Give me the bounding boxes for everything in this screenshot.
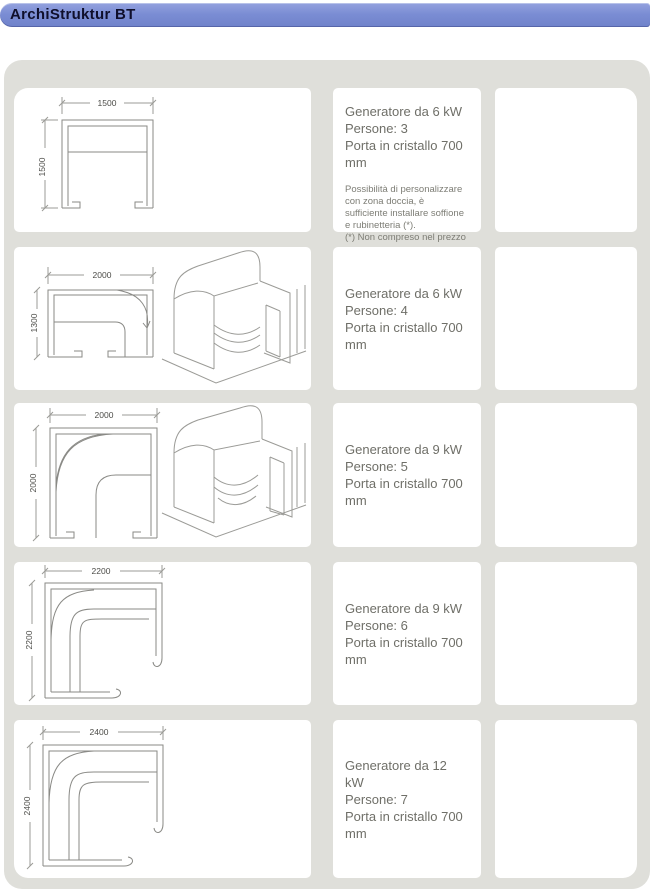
plan-walls [45,583,162,698]
iso-cabin [162,251,306,383]
spec-line: Persone: 6 [345,617,469,634]
plan-width-label: 2200 [92,566,111,576]
drawing-cell-row3: 2000 2000 [14,403,311,547]
drawing-cell-row2: 2000 1300 [14,247,311,390]
spec-cell-row1: Generatore da 6 kW Persone: 3 Porta in c… [333,88,481,232]
empty-cell-row2 [495,247,637,390]
empty-cell-row3 [495,403,637,547]
dimension-lines [41,97,156,211]
drawing-cell-row4: 2200 2200 [14,562,311,705]
plan-drawing-1500x1500: 1500 1500 [14,88,311,232]
spec-line: Generatore da 9 kW [345,600,469,617]
spec-cell-row5: Generatore da 12 kW Persone: 7 Porta in … [333,720,481,878]
dimension-lines [29,565,165,701]
spec-line: Generatore da 6 kW [345,103,469,120]
iso-drawing-row3 [14,403,311,547]
empty-cell-row1 [495,88,637,232]
spec-cell-row3: Generatore da 9 kW Persone: 5 Porta in c… [333,403,481,547]
spec-line: Generatore da 6 kW [345,285,469,302]
plan-walls [62,120,153,208]
iso-cabin [162,406,306,537]
spec-line: Generatore da 12 kW [345,757,469,791]
plan-drawing-2400x2400: 2400 2400 [14,720,311,878]
spec-line: Generatore da 9 kW [345,441,469,458]
spec-line: Persone: 3 [345,120,469,137]
catalog-panel: 1500 1500 Generatore da 6 kW Persone: 3 … [4,60,650,889]
spec-cell-row4: Generatore da 9 kW Persone: 6 Porta in c… [333,562,481,705]
empty-cell-row4 [495,562,637,705]
empty-cell-row5 [495,720,637,878]
spec-line: Persone: 7 [345,791,469,808]
spec-line: Persone: 4 [345,302,469,319]
spec-line: Porta in cristallo 700 mm [345,634,469,668]
spec-line: Porta in cristallo 700 mm [345,808,469,842]
plan-walls [43,745,163,866]
page-title: ArchiStruktur BT [0,3,650,23]
note-text: Possibilità di personalizzare con zona d… [345,184,469,232]
plan-height-label: 2400 [22,796,32,815]
spec-cell-row2: Generatore da 6 kW Persone: 4 Porta in c… [333,247,481,390]
note-text: (*) Non compreso nel prezzo [345,232,469,244]
plan-drawing-2200x2200: 2200 2200 [14,562,311,705]
plan-height-label: 1500 [37,157,47,176]
drawing-cell-row5: 2400 2400 [14,720,311,878]
app-header: ArchiStruktur BT [0,3,650,27]
customization-note: Possibilità di personalizzare con zona d… [345,184,469,244]
iso-drawing-row2 [14,247,311,390]
spec-line: Persone: 5 [345,458,469,475]
spec-line: Porta in cristallo 700 mm [345,319,469,353]
spec-line: Porta in cristallo 700 mm [345,475,469,509]
dimension-lines [27,726,166,869]
plan-width-label: 2400 [90,727,109,737]
plan-height-label: 2200 [24,630,34,649]
drawing-cell-row1: 1500 1500 [14,88,311,232]
plan-width-label: 1500 [98,98,117,108]
spec-line: Porta in cristallo 700 mm [345,137,469,171]
